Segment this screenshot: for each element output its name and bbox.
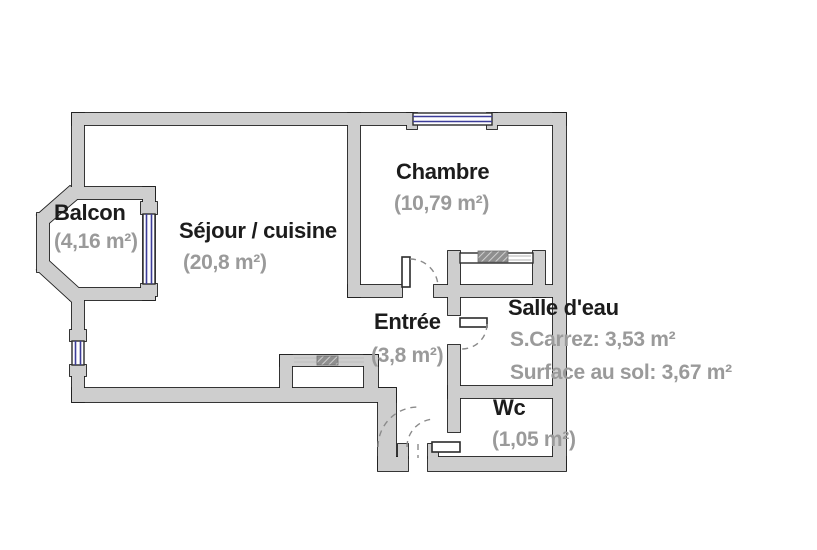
room-label-sejour: Séjour / cuisine (179, 218, 337, 244)
floorplan-page: { "plan": { "type": "apartment-floorplan… (0, 0, 817, 550)
room-label-salle-eau: Salle d'eau (508, 295, 619, 321)
door-salle-eau-leaf (460, 318, 487, 327)
room-area-sejour: (20,8 m²) (183, 251, 267, 275)
room-label-balcon: Balcon (54, 200, 126, 226)
door-salle-eau (460, 318, 487, 349)
radiator-chambre (478, 251, 508, 262)
room-area-entree: (3,8 m²) (371, 344, 443, 368)
door-wc-leaf (432, 442, 460, 452)
room-area-salle-eau-carrez: S.Carrez: 3,53 m² (510, 328, 675, 352)
window-chambre-top (413, 113, 492, 125)
room-label-wc: Wc (493, 395, 525, 421)
window-sejour-left (72, 341, 84, 365)
room-label-chambre: Chambre (396, 159, 489, 185)
door-chambre (402, 257, 438, 287)
door-chambre-leaf (402, 257, 410, 287)
door-chambre-swing (410, 259, 438, 287)
window-balcony (143, 214, 155, 284)
room-area-balcon: (4,16 m²) (54, 230, 138, 254)
room-label-entree: Entrée (374, 309, 441, 335)
room-area-wc: (1,05 m²) (492, 428, 576, 452)
door-wc-swing (407, 419, 435, 447)
floorplan-drawing (0, 0, 817, 550)
radiator-sejour (317, 356, 338, 365)
room-area-salle-eau-sol: Surface au sol: 3,67 m² (510, 361, 732, 385)
room-area-chambre: (10,79 m²) (394, 192, 489, 216)
